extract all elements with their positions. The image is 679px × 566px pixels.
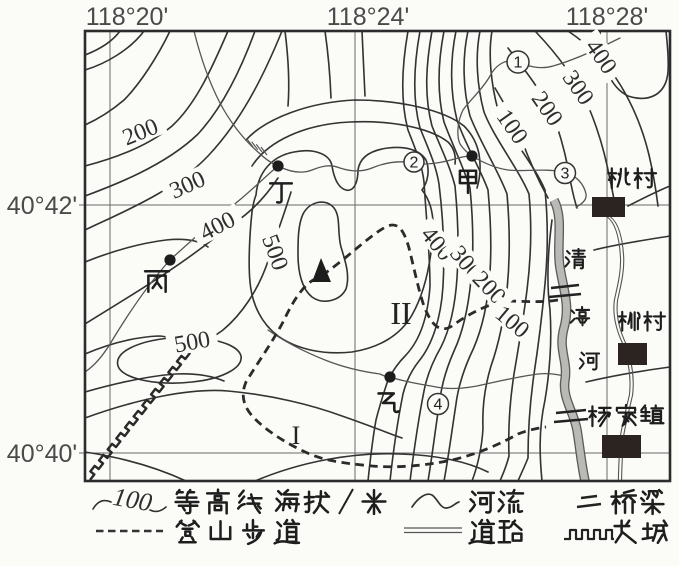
svg-text:40°40': 40°40' bbox=[7, 440, 77, 468]
svg-text:1: 1 bbox=[514, 55, 523, 72]
svg-text:II: II bbox=[390, 295, 411, 331]
svg-text:I: I bbox=[292, 421, 301, 450]
svg-text:2: 2 bbox=[410, 155, 419, 172]
svg-text:4: 4 bbox=[434, 397, 443, 414]
svg-text:118°28': 118°28' bbox=[566, 3, 648, 31]
svg-text:40°42': 40°42' bbox=[7, 192, 77, 220]
svg-text:118°24': 118°24' bbox=[327, 3, 409, 31]
svg-text:118°20': 118°20' bbox=[86, 3, 168, 31]
svg-text:3: 3 bbox=[561, 166, 570, 183]
